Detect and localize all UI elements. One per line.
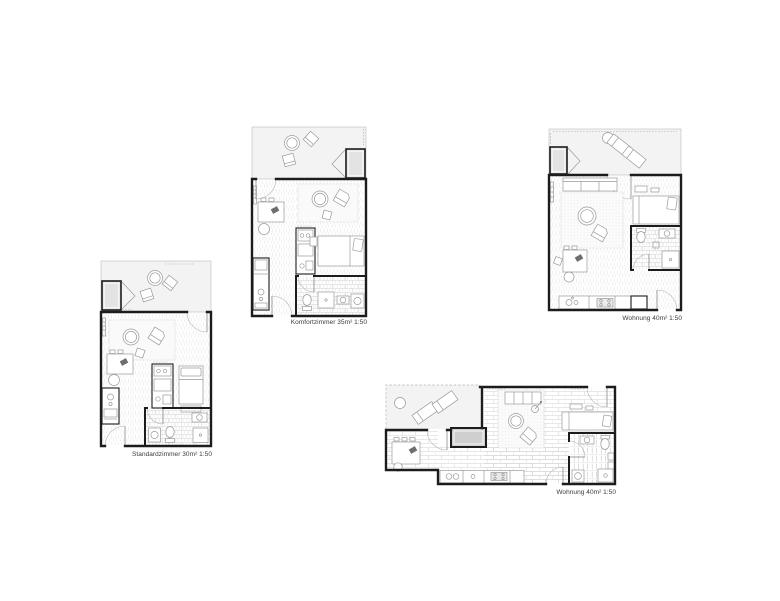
seating-area bbox=[498, 390, 544, 448]
bathroom bbox=[631, 226, 680, 270]
seating-area bbox=[561, 192, 623, 248]
entry-vestibule bbox=[451, 428, 486, 447]
plan-label: Komfortzimmer 35m² 1:50 bbox=[248, 318, 367, 327]
kitchenette bbox=[253, 258, 269, 310]
bathroom bbox=[145, 408, 210, 445]
wardrobe-unit bbox=[152, 362, 173, 408]
floor-plan-komfortzimmer: Komfortzimmer 35m² 1:50 bbox=[248, 124, 370, 332]
seating-area bbox=[298, 184, 358, 222]
sofa bbox=[563, 178, 617, 191]
plan-label: Wohnung 40m² 1:50 bbox=[545, 314, 682, 323]
bathroom bbox=[296, 276, 365, 315]
floor-plan-drawing-wohnung-b bbox=[383, 383, 619, 487]
balcony bbox=[386, 385, 481, 429]
plan-label: Wohnung 40m² 1:50 bbox=[383, 488, 616, 497]
floor-plan-wohnung-b: Wohnung 40m² 1:50 bbox=[383, 383, 619, 501]
floor-plan-standardzimmer: Standardzimmer 30m² 1:50 bbox=[97, 258, 215, 463]
floor-plan-sheet: Standardzimmer 30m² 1:50 bbox=[0, 0, 780, 601]
bathroom bbox=[569, 433, 614, 483]
wardrobe-unit bbox=[296, 226, 315, 274]
floor-plan-drawing-standardzimmer bbox=[97, 258, 215, 448]
balcony bbox=[549, 129, 681, 175]
floor-plan-drawing-wohnung-a bbox=[545, 126, 685, 313]
floor-plan-drawing-komfortzimmer bbox=[248, 124, 370, 318]
kitchenette bbox=[102, 388, 119, 424]
plan-label: Standardzimmer 30m² 1:50 bbox=[97, 450, 212, 459]
floor-plan-wohnung-a: Wohnung 40m² 1:50 bbox=[545, 126, 685, 326]
bed bbox=[310, 236, 364, 266]
kitchen bbox=[559, 296, 647, 309]
kitchen bbox=[440, 471, 524, 484]
